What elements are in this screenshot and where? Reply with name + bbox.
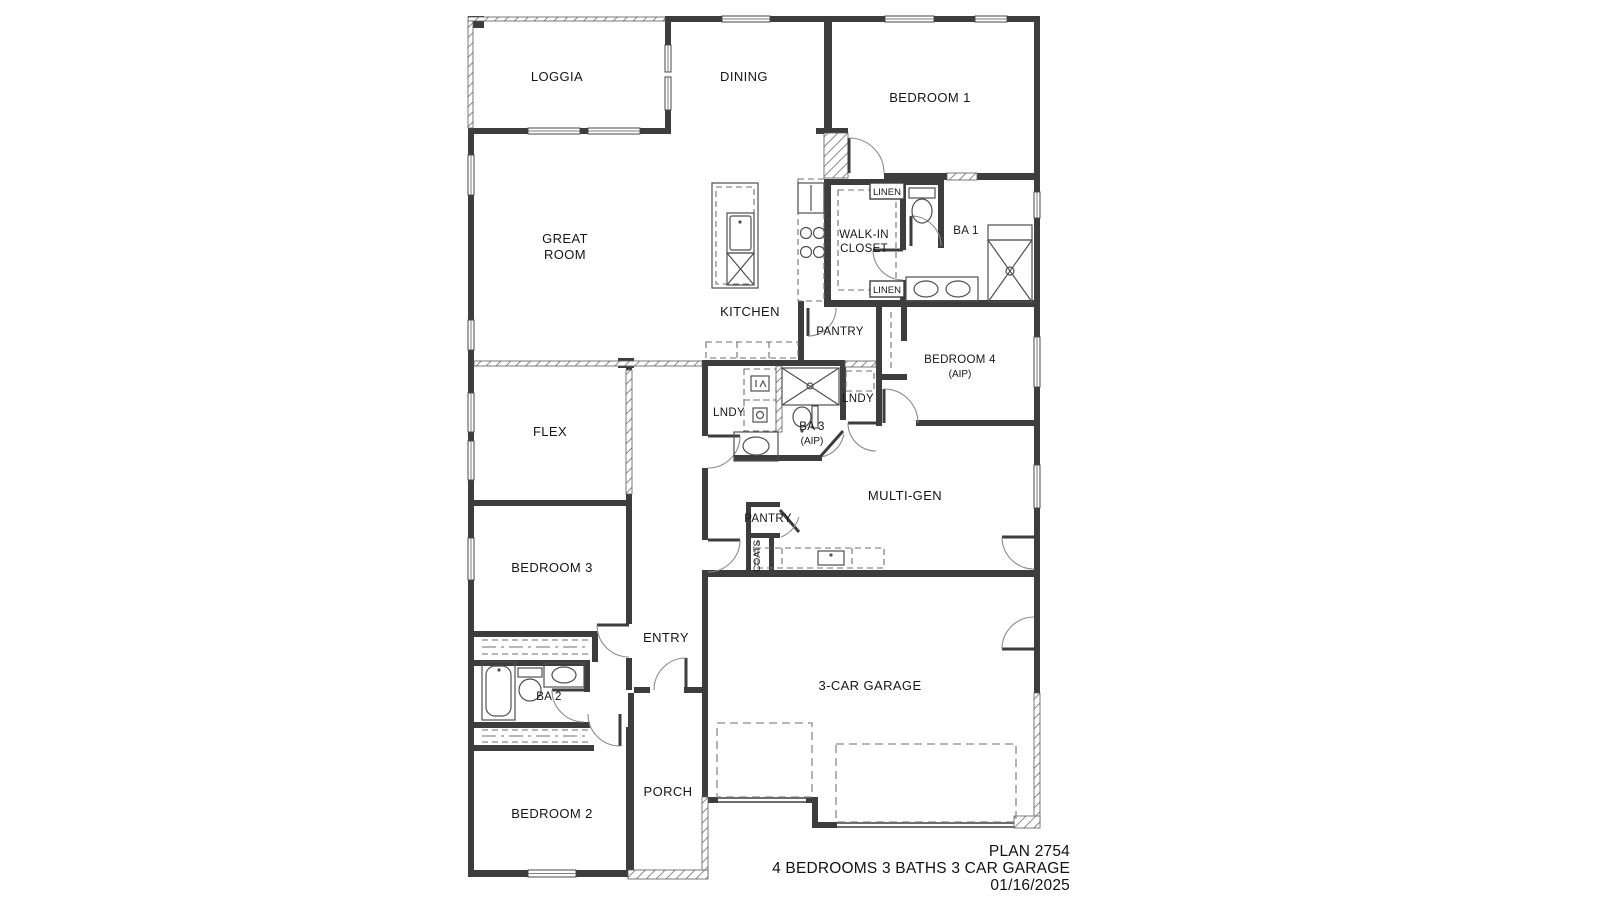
porch-right-edge <box>702 797 708 877</box>
room-label-pantry-multigen: PANTRY <box>744 513 791 525</box>
window <box>468 441 474 480</box>
window <box>588 128 640 134</box>
room-label-bedroom4: BEDROOM 4 <box>924 354 996 366</box>
room-label-bath3: BA 3 <box>799 421 825 433</box>
room-label-bath1: BA 1 <box>953 225 979 237</box>
label-linen-upper: LINEN <box>873 187 901 198</box>
room-label-great-room: ROOM <box>544 247 586 262</box>
flex-open-edge <box>626 370 632 494</box>
label-linen-lower: LINEN <box>873 285 901 296</box>
great-room-flex-ceiling-break <box>474 361 702 366</box>
room-label-walkin-closet: CLOSET <box>840 243 888 255</box>
window <box>1034 192 1040 218</box>
window <box>468 393 474 432</box>
room-label-bath3-note: (AIP) <box>801 436 824 447</box>
laundry-bath3-divider <box>776 366 782 432</box>
room-label-bedroom1: BEDROOM 1 <box>889 90 971 105</box>
window <box>1034 465 1040 508</box>
window <box>975 16 1007 22</box>
garage-right-wall-lower <box>1034 693 1040 822</box>
porch-front-edge <box>628 870 708 879</box>
page-background <box>0 0 1600 900</box>
room-label-entry: ENTRY <box>643 630 689 645</box>
floor-plan: LOGGIA DINING BEDROOM 1 GREAT ROOM KITCH… <box>0 0 1600 900</box>
room-label-kitchen: KITCHEN <box>720 304 780 319</box>
room-label-garage: 3-CAR GARAGE <box>818 678 921 693</box>
room-label-bedroom2: BEDROOM 2 <box>511 806 593 821</box>
faucet <box>738 220 741 223</box>
window <box>1034 337 1040 387</box>
room-label-bedroom4-note: (AIP) <box>949 369 972 380</box>
room-label-walkin-closet: WALK-IN <box>839 229 889 241</box>
room-label-porch: PORCH <box>644 784 693 799</box>
window <box>665 77 671 110</box>
window <box>528 128 580 134</box>
garage-corner-pier <box>1014 816 1040 828</box>
room-label-flex: FLEX <box>533 424 567 439</box>
loggia-open-edge-top <box>468 17 665 21</box>
room-label-dining: DINING <box>720 69 768 84</box>
plan-number: PLAN 2754 <box>989 843 1070 860</box>
window <box>722 16 770 22</box>
window <box>468 320 474 350</box>
window <box>468 155 474 195</box>
room-label-laundry-opt: LNDY <box>842 393 874 405</box>
room-label-bedroom3: BEDROOM 3 <box>511 560 593 575</box>
room-label-laundry: LNDY <box>713 407 745 419</box>
bedroom1-entry-pier <box>824 133 848 178</box>
window <box>665 45 671 72</box>
bedroom1-wall-break <box>947 173 977 180</box>
window <box>885 16 934 22</box>
room-label-coats: COATS <box>752 540 763 572</box>
window <box>468 538 474 580</box>
room-label-loggia: LOGGIA <box>531 69 583 84</box>
room-label-great-room: GREAT <box>542 231 588 246</box>
room-label-bath2: BA 2 <box>536 691 562 703</box>
plan-specs: 4 BEDROOMS 3 BATHS 3 CAR GARAGE <box>772 860 1070 877</box>
loggia-open-edge-left <box>468 21 473 128</box>
window <box>528 870 576 877</box>
plan-date: 01/16/2025 <box>990 877 1070 894</box>
room-label-multi-gen: MULTI-GEN <box>868 488 942 503</box>
laundry-opt-top-wall <box>845 361 876 367</box>
room-label-pantry-kitchen: PANTRY <box>816 326 863 338</box>
